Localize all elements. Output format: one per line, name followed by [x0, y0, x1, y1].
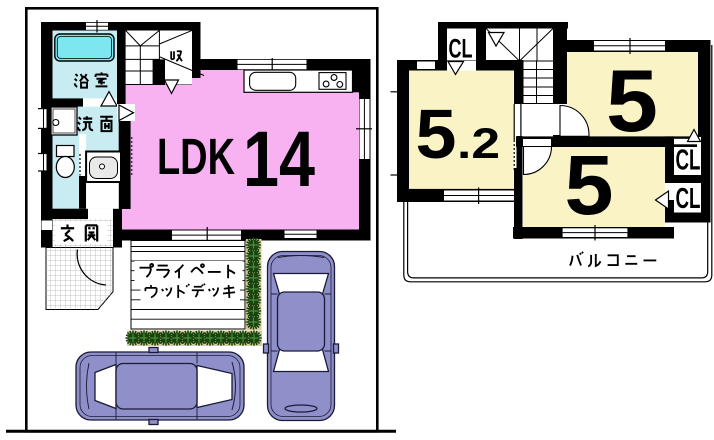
svg-text:5: 5: [416, 95, 457, 173]
svg-text:CL: CL: [676, 183, 701, 215]
svg-text:CL: CL: [676, 144, 701, 176]
svg-text:14: 14: [243, 114, 315, 203]
svg-text:LDK: LDK: [157, 128, 235, 185]
svg-text:.2: .2: [457, 120, 500, 168]
svg-text:5: 5: [606, 51, 658, 150]
svg-text:CL: CL: [449, 34, 473, 64]
svg-text:5: 5: [565, 138, 614, 232]
